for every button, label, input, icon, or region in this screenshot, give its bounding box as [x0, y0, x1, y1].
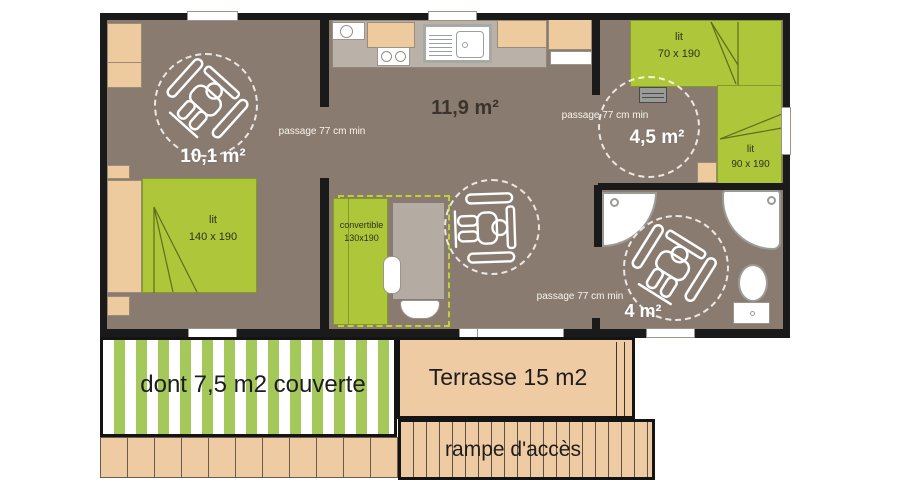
kitchen-cabinet-left: [367, 22, 415, 48]
convertible-name: convertible: [336, 219, 387, 232]
bed-name: lit: [173, 212, 253, 229]
bay-door-divider: [477, 329, 478, 337]
bed-side-unit: [107, 180, 142, 293]
burner-icon: [395, 51, 406, 62]
sofa-back-line: [348, 199, 349, 324]
exterior-wall-left: [100, 13, 107, 338]
convertible-label: convertible 130x190: [336, 219, 387, 244]
covered-terrace-label: dont 7,5 m2 couverte: [108, 371, 398, 399]
corner-shelf: [697, 162, 717, 183]
bed-90-label: lit 90 x 190: [718, 142, 783, 172]
interior-wall: [594, 185, 602, 247]
room-area-bathroom: 4 m²: [593, 301, 693, 322]
bathroom-door: [646, 328, 695, 338]
bed-size: 70 x 190: [639, 46, 719, 63]
room-area-bedroom-second: 4,5 m²: [597, 127, 717, 149]
convertible-sofa: convertible 130x190: [333, 198, 388, 325]
bed-70-label: lit 70 x 190: [639, 29, 719, 62]
wardrobe-divider: [108, 62, 141, 63]
flush-button-icon: [750, 311, 755, 316]
floor-plan: lit 140 x 190 10,1 m² passage 77 cm min …: [0, 0, 900, 500]
toilet-bowl: [738, 264, 768, 302]
wheelchair-icon: [450, 190, 527, 267]
faucet-icon: [462, 42, 468, 48]
passage-note-1: passage 77 cm min: [272, 126, 372, 137]
stove: [377, 47, 410, 66]
shower-drain-icon: [610, 198, 619, 207]
nightstand-bottom: [107, 296, 130, 316]
kitchen-cabinet-right: [497, 20, 547, 48]
interior-wall: [320, 20, 329, 107]
room-area-bedroom-main: 10,1 m²: [153, 146, 273, 168]
deck-edge-line: [616, 342, 617, 416]
bed-double-label: lit 140 x 190: [173, 212, 253, 245]
drainboard-icon: [429, 32, 452, 59]
toilet-tank: [733, 302, 770, 324]
washbasin-bowl-icon: [340, 25, 353, 38]
window: [187, 11, 238, 21]
sink-bowl-icon: [456, 31, 484, 58]
bed-90: lit 90 x 190: [717, 85, 782, 185]
window: [428, 11, 477, 21]
interior-wall: [320, 178, 329, 330]
bed-name: lit: [718, 142, 783, 157]
burner-icon: [381, 51, 392, 62]
bed-double: lit 140 x 190: [142, 178, 257, 293]
tall-cabinet: [548, 19, 592, 50]
bed-size: 90 x 190: [718, 157, 783, 172]
terrace-label: Terrasse 15 m2: [408, 364, 608, 391]
shower-drain-icon: [767, 196, 776, 205]
window: [781, 107, 791, 155]
terrace-boardwalk: [100, 437, 398, 478]
appliance: [550, 51, 592, 65]
deck-edge-line: [624, 342, 625, 416]
ramp-label: rampe d'accès: [413, 438, 613, 462]
chair: [383, 256, 401, 294]
room-area-living: 11,9 m²: [405, 97, 525, 120]
bed-name: lit: [639, 29, 719, 46]
convertible-size: 130x190: [336, 232, 387, 245]
sink-unit: [423, 24, 492, 63]
nightstand-top: [107, 165, 130, 179]
washbasin: [332, 22, 365, 40]
interior-wall: [592, 18, 600, 95]
wardrobe: [107, 23, 142, 88]
interior-wall: [598, 183, 790, 190]
bed-size: 140 x 190: [173, 229, 253, 246]
exterior-wall-right: [783, 13, 790, 338]
